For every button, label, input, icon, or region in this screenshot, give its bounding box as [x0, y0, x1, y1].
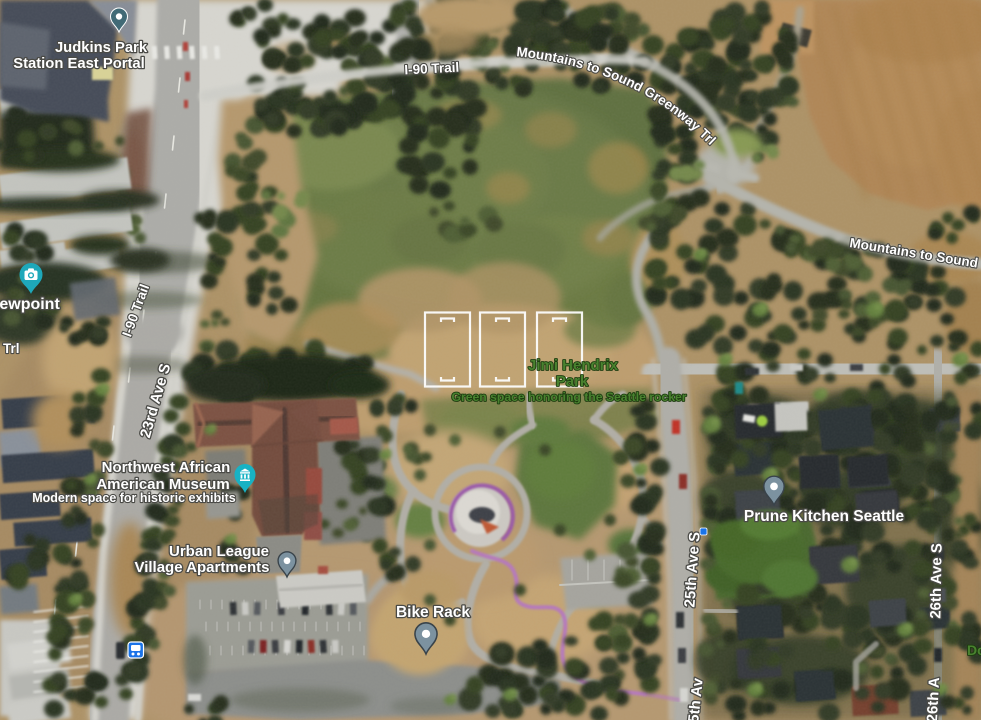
svg-text:Prune Kitchen Seattle: Prune Kitchen Seattle [744, 508, 905, 525]
svg-text:Trl: Trl [3, 341, 20, 356]
svg-text:Village Apartments: Village Apartments [134, 559, 269, 576]
svg-text:Park: Park [556, 373, 589, 390]
svg-text:Station East Portal: Station East Portal [13, 56, 145, 72]
svg-text:Jimi Hendrix: Jimi Hendrix [528, 357, 619, 374]
svg-text:Northwest African: Northwest African [102, 459, 231, 476]
svg-text:26th Ave S: 26th Ave S [927, 543, 945, 619]
svg-text:Dou: Dou [967, 642, 981, 658]
svg-text:Green space honoring the Seatt: Green space honoring the Seattle rocker [451, 390, 686, 404]
svg-text:26th A: 26th A [924, 677, 943, 720]
svg-text:I-90 Trail: I-90 Trail [404, 60, 459, 78]
svg-text:Modern space for historic exhi: Modern space for historic exhibits [32, 491, 236, 505]
svg-text:Bike Rack: Bike Rack [396, 604, 470, 621]
svg-text:Urban League: Urban League [169, 543, 269, 560]
svg-text:Judkins Park: Judkins Park [55, 40, 148, 56]
svg-text:viewpoint: viewpoint [0, 296, 60, 313]
